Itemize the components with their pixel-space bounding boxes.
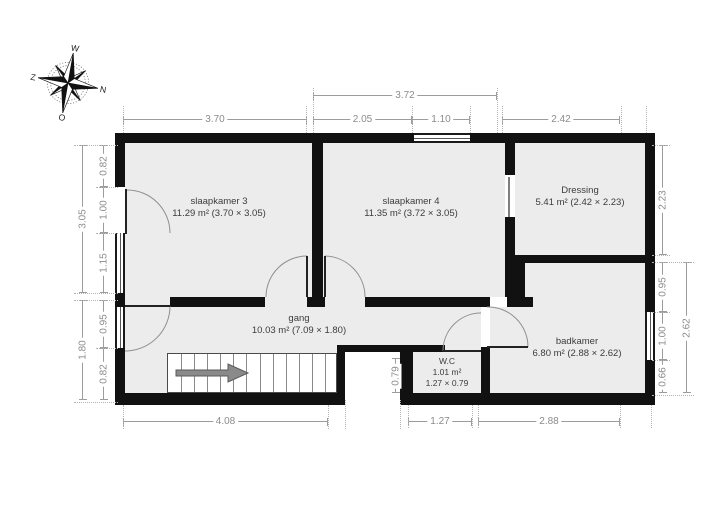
- dimension-label: 1.10: [428, 114, 453, 125]
- room-area: 5.41 m² (2.42 × 2.23): [536, 197, 625, 209]
- extension-line: [96, 348, 118, 349]
- room-label-slaapkamer-3: slaapkamer 3 11.29 m² (3.70 × 3.05): [172, 196, 266, 220]
- wall: [115, 133, 125, 187]
- extension-line: [74, 300, 118, 301]
- dimension-bottom: 4.08: [123, 421, 328, 422]
- window-left-lower: [115, 307, 125, 348]
- room-name: gang: [252, 313, 346, 325]
- room-area: 6.80 m² (2.88 × 2.62): [533, 348, 622, 360]
- extension-line: [470, 106, 471, 133]
- dimension-label: 3.05: [78, 206, 89, 231]
- window-top: [414, 133, 470, 143]
- dimension-left: 1.15: [103, 233, 104, 293]
- compass-label-top: W: [70, 45, 81, 54]
- extension-line: [328, 405, 329, 429]
- wall: [413, 345, 445, 352]
- stair-tread-line: [246, 354, 247, 392]
- extension-line: [651, 405, 652, 428]
- dimension-top: 1.10: [412, 119, 470, 120]
- room-name: Dressing: [536, 185, 625, 197]
- dimension-label: 0.79: [391, 363, 402, 388]
- wall: [400, 393, 655, 405]
- wall: [513, 255, 655, 263]
- dimension-label: 4.08: [213, 416, 238, 427]
- dimension-label: 2.23: [658, 187, 669, 212]
- extension-line: [621, 106, 622, 133]
- dimension-label: 2.62: [682, 315, 693, 340]
- dimension-left: 0.82: [103, 348, 104, 400]
- dimension-label: 0.95: [658, 274, 669, 299]
- dimension-label: 0.82: [99, 153, 110, 178]
- dimension-label: 1.00: [99, 197, 110, 222]
- staircase: [167, 353, 337, 393]
- extension-line: [408, 405, 409, 428]
- dimension-left: 1.80: [82, 300, 83, 400]
- room-floor-slaapkamer-3: [125, 143, 312, 297]
- extension-line: [96, 187, 118, 188]
- room-label-dressing: Dressing 5.41 m² (2.42 × 2.23): [536, 185, 625, 209]
- room-name: slaapkamer 3: [172, 196, 266, 208]
- extension-line: [412, 106, 413, 133]
- stair-tread-line: [181, 354, 182, 392]
- window-right-badkamer: [645, 312, 655, 360]
- floorplan-canvas: slaapkamer 3 11.29 m² (3.70 × 3.05) slaa…: [0, 0, 721, 510]
- extension-line: [345, 400, 346, 429]
- dimension-bottom: 2.88: [478, 421, 620, 422]
- dimension-label: 2.05: [350, 114, 375, 125]
- extension-line: [652, 312, 670, 313]
- wall: [365, 297, 490, 307]
- dimension-right: 2.62: [686, 262, 687, 393]
- wall: [115, 133, 655, 143]
- extension-line: [620, 405, 621, 428]
- wall: [307, 297, 325, 307]
- stair-tread-line: [325, 354, 326, 392]
- room-area: 11.29 m² (3.70 × 3.05): [172, 208, 266, 220]
- compass-label-right: N: [99, 84, 106, 95]
- dimension-label: 0.66: [658, 364, 669, 389]
- room-name: badkamer: [533, 336, 622, 348]
- extension-line: [472, 405, 473, 428]
- stair-tread-line: [260, 354, 261, 392]
- stair-tread-line: [312, 354, 313, 392]
- room-label-wc: W.C 1.01 m² 1.27 × 0.79: [426, 356, 469, 389]
- wall: [170, 297, 265, 307]
- wall: [505, 143, 515, 175]
- dimension-inner: 0.79: [395, 358, 396, 393]
- room-area: 1.01 m²: [426, 367, 469, 378]
- stair-tread-line: [233, 354, 234, 392]
- dimension-label: 3.70: [202, 114, 227, 125]
- compass-label-left: Z: [30, 72, 37, 83]
- extension-line: [306, 106, 307, 133]
- stair-tread-line: [207, 354, 208, 392]
- extension-line: [123, 405, 124, 429]
- dimension-left: 1.00: [103, 187, 104, 233]
- stair-tread-line: [273, 354, 274, 392]
- room-floor-slaapkamer-4: [323, 143, 505, 297]
- dimension-label: 2.88: [536, 416, 561, 427]
- stair-tread-line: [194, 354, 195, 392]
- dimension-bottom: 1.27: [408, 421, 472, 422]
- compass-rose: W N O Z: [30, 45, 106, 121]
- dimension-top: 2.05: [313, 119, 412, 120]
- room-size: 1.27 × 0.79: [426, 378, 469, 389]
- dimension-left: 0.95: [103, 300, 104, 348]
- extension-line: [502, 106, 503, 133]
- stair-tread-line: [286, 354, 287, 392]
- wall: [312, 143, 323, 297]
- extension-line: [123, 106, 124, 133]
- dimension-label: 3.72: [392, 90, 417, 101]
- stair-tread-line: [299, 354, 300, 392]
- extension-line: [400, 400, 401, 429]
- dimension-top: 2.42: [502, 119, 620, 120]
- extension-line: [652, 145, 670, 146]
- room-name: slaapkamer 4: [364, 196, 458, 208]
- room-label-badkamer: badkamer 6.80 m² (2.88 × 2.62): [533, 336, 622, 360]
- extension-line: [478, 405, 479, 428]
- room-label-gang: gang 10.03 m² (7.09 × 1.80): [252, 313, 346, 337]
- extension-line: [74, 145, 118, 146]
- dimension-label: 2.42: [548, 114, 573, 125]
- room-area: 11.35 m² (3.72 × 3.05): [364, 208, 458, 220]
- dimension-right: 0.95: [662, 262, 663, 312]
- extension-line: [74, 402, 118, 403]
- dimension-label: 1.15: [99, 250, 110, 275]
- stair-tread-line: [220, 354, 221, 392]
- wall: [481, 347, 490, 397]
- compass-label-bottom: O: [58, 112, 67, 121]
- dimension-label: 1.27: [427, 416, 452, 427]
- dimension-left: 0.82: [103, 145, 104, 187]
- extension-line: [646, 106, 647, 133]
- extension-line: [313, 88, 314, 133]
- wall: [645, 133, 655, 403]
- extension-line: [652, 262, 694, 263]
- dimension-right: 2.23: [662, 145, 663, 255]
- room-label-slaapkamer-4: slaapkamer 4 11.35 m² (3.72 × 3.05): [364, 196, 458, 220]
- extension-line: [74, 293, 118, 294]
- dimension-top: 3.70: [123, 119, 307, 120]
- dimension-label: 1.00: [658, 323, 669, 348]
- room-name: W.C: [426, 356, 469, 367]
- extension-line: [652, 395, 694, 396]
- dimension-top: 3.72: [313, 95, 497, 96]
- dimension-right: 0.66: [662, 360, 663, 393]
- dimension-right: 1.00: [662, 312, 663, 360]
- dimension-left: 3.05: [82, 145, 83, 293]
- extension-line: [497, 88, 498, 133]
- extension-line: [652, 360, 670, 361]
- dimension-label: 0.82: [99, 361, 110, 386]
- window-left-upper: [115, 233, 125, 293]
- room-area: 10.03 m² (7.09 × 1.80): [252, 325, 346, 337]
- dimension-label: 0.95: [99, 311, 110, 336]
- extension-line: [96, 233, 118, 234]
- dimension-label: 1.80: [78, 337, 89, 362]
- wall: [115, 393, 345, 405]
- extension-line: [652, 255, 670, 256]
